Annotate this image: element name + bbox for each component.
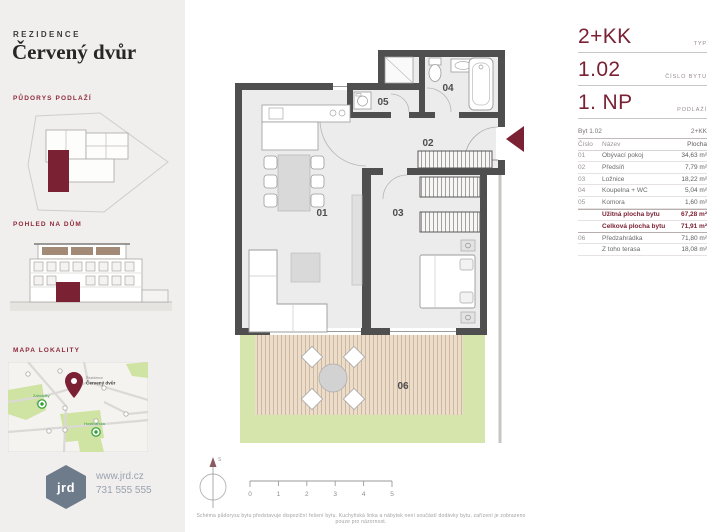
scale-labels: 0 1 2 3 4 5 (248, 491, 394, 498)
table-row: 02 Předsíň 7,79 m² (578, 162, 707, 174)
map-pin-label-line1: Rezidence (86, 376, 103, 380)
toilet (429, 65, 441, 82)
unit-type-value: 2+KK (578, 25, 632, 48)
compass-icon: S (200, 457, 226, 508)
svg-text:3: 3 (333, 491, 337, 498)
tv-sideboard (352, 195, 362, 285)
sidebar: REZIDENCE Červený dvůr PŮDORYS PODLAŽÍ P… (0, 0, 185, 532)
table-row: 04 Koupelna + WC 5,04 m² (578, 185, 707, 197)
section-label-map: MAPA LOKALITY (13, 347, 80, 354)
unit-floor-row: 1. NP PODLAŽÍ (578, 86, 707, 119)
unit-type-label: TYP (694, 41, 707, 47)
floorplan-drawing: 01 02 03 04 05 06 S 0 1 2 3 (185, 0, 570, 532)
table-header-right: 2+KK (691, 128, 707, 135)
entrance-arrow-icon (506, 126, 524, 152)
unit-info-panel: 2+KK TYP 1.02 ČÍSLO BYTU 1. NP PODLAŽÍ B… (578, 20, 707, 256)
summary-row-usable-area: Užitná plocha bytu 67,28 m² (578, 209, 707, 222)
storage-fixture (354, 92, 371, 109)
table-row-garden: 06 Předzahrádka 71,80 m² (578, 233, 707, 245)
floor-overview-thumbnail (8, 110, 176, 215)
svg-text:5: 5 (390, 491, 394, 498)
table-row: 03 Ložnice 18,22 m² (578, 174, 707, 186)
table-columns: Číslo Název Plocha (578, 139, 707, 151)
room-label-02: 02 (422, 138, 434, 149)
disclaimer-text: Schéma půdorysu bytu představuje dispozi… (193, 513, 529, 525)
locality-map: Rezidence Červený dvůr Zahrádky Hostivař… (8, 362, 148, 452)
compass-north-label: S (218, 457, 222, 463)
map-poi-label-1: Zahrádky (33, 393, 50, 398)
unit-number-value: 1.02 (578, 58, 620, 81)
scale-bar (250, 481, 392, 487)
highlighted-unit-elevation (56, 282, 80, 302)
section-label-elevation: POHLED NA DŮM (13, 221, 82, 228)
terrace-table (319, 364, 347, 392)
coffee-table (291, 253, 320, 282)
unit-number-row: 1.02 ČÍSLO BYTU (578, 53, 707, 86)
summary-row-total-area: Celková plocha bytu 71,91 m² (578, 221, 707, 233)
table-row-terrace: Z toho terasa 18,08 m² (578, 244, 707, 256)
svg-text:2: 2 (305, 491, 309, 498)
kitchen-counter (262, 105, 350, 122)
svg-text:4: 4 (362, 491, 366, 498)
highlighted-unit-overview (48, 150, 69, 192)
table-row: 05 Komora 1,60 m² (578, 197, 707, 209)
utility-shaft (385, 57, 413, 83)
table-header-left: Byt 1.02 (578, 128, 602, 135)
building-elevation-thumbnail (8, 238, 176, 323)
terrace-garden (240, 335, 485, 443)
unit-floor-value: 1. NP (578, 91, 633, 114)
map-pin-label-line2: Červený dvůr (86, 380, 116, 386)
room-label-01: 01 (316, 208, 328, 219)
phone-number[interactable]: 731 555 555 (96, 485, 152, 496)
plot-edge (499, 175, 502, 443)
unit-type-row: 2+KK TYP (578, 20, 707, 53)
areas-table: Byt 1.02 2+KK Číslo Název Plocha 01 Obýv… (578, 125, 707, 256)
table-row: 01 Obývací pokoj 34,63 m² (578, 151, 707, 163)
room-label-06: 06 (397, 381, 409, 392)
brand-prefix: REZIDENCE (13, 30, 81, 39)
dining-table (278, 155, 310, 211)
unit-floor-label: PODLAŽÍ (677, 107, 707, 113)
room-label-05: 05 (377, 97, 389, 108)
room-label-03: 03 (392, 208, 404, 219)
jrd-logo[interactable]: jrd (46, 465, 86, 509)
floorplan-sheet: REZIDENCE Červený dvůr PŮDORYS PODLAŽÍ P… (0, 0, 710, 532)
section-label-floorplan: PŮDORYS PODLAŽÍ (13, 95, 92, 102)
website-link[interactable]: www.jrd.cz (96, 471, 144, 482)
svg-text:1: 1 (277, 491, 281, 498)
table-header: Byt 1.02 2+KK (578, 125, 707, 139)
jrd-logo-text: jrd (57, 480, 75, 495)
washing-machine (354, 92, 371, 109)
svg-text:0: 0 (248, 491, 252, 498)
kitchen-island (262, 122, 318, 150)
brand-name: Červený dvůr (12, 40, 136, 65)
room-label-04: 04 (442, 83, 454, 94)
map-poi-label-2: Hostivařská (84, 421, 106, 426)
unit-number-label: ČÍSLO BYTU (665, 74, 707, 80)
